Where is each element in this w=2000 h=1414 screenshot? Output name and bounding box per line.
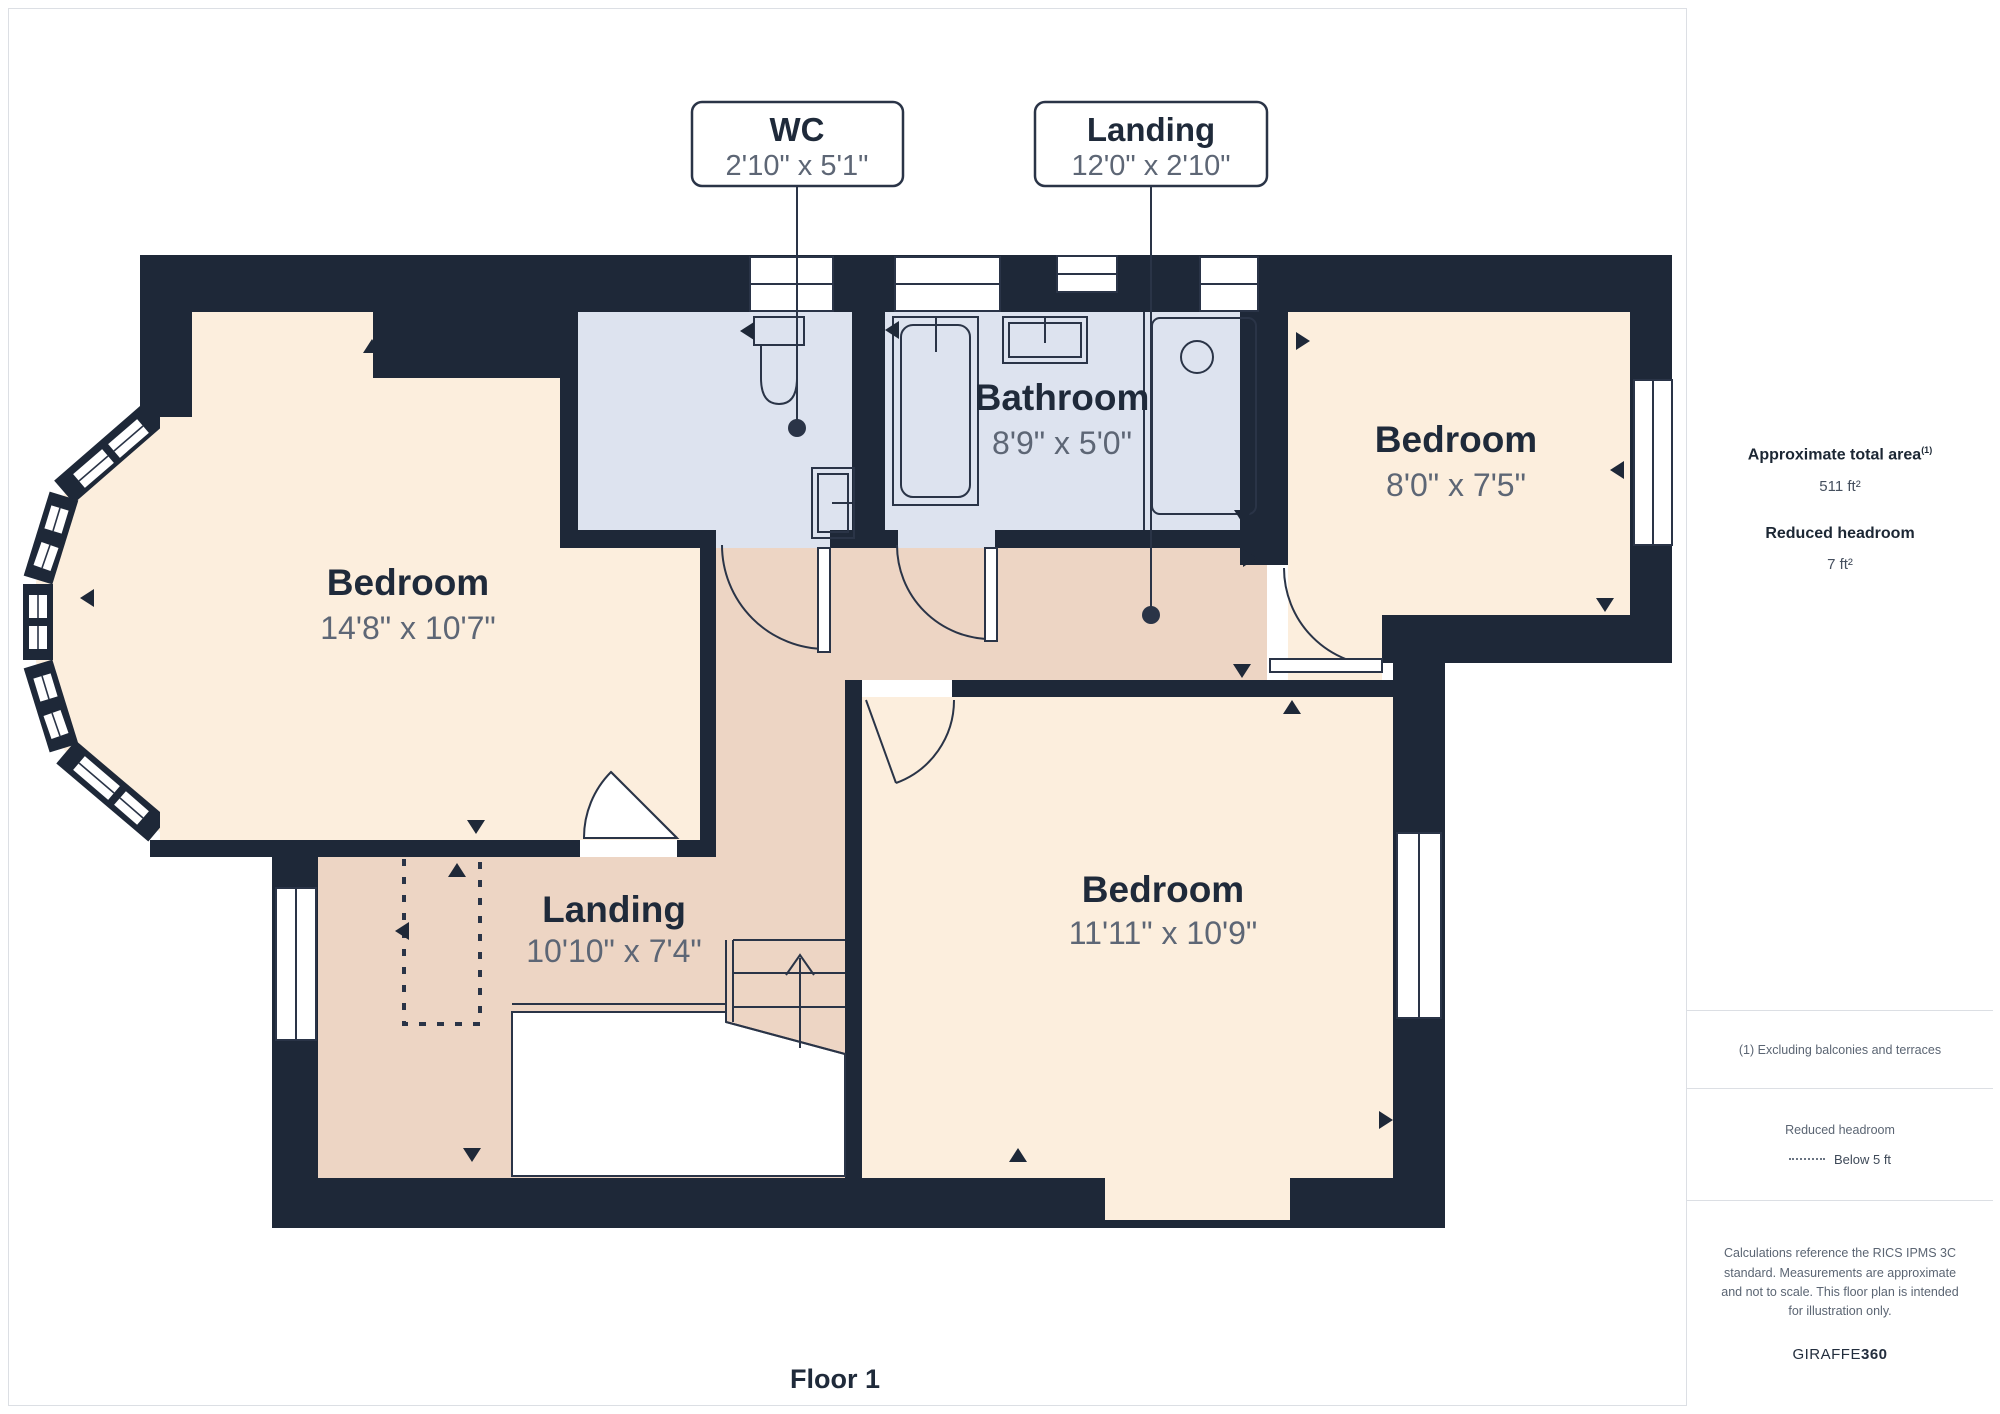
legend-row: Below 5 ft	[1789, 1152, 1891, 1167]
label-bedroom-topright-dims: 8'0" x 7'5"	[1386, 467, 1526, 503]
label-bedroom-bottomright-title: Bedroom	[1082, 869, 1244, 910]
wall-segment	[995, 530, 1240, 548]
callout-landing-title: Landing	[1087, 111, 1215, 148]
bedroom-bottom-notch	[1105, 1178, 1290, 1220]
window	[750, 257, 833, 311]
sidebar-disclaimer-section: Calculations reference the RICS IPMS 3C …	[1687, 1200, 1993, 1406]
window	[276, 888, 316, 1040]
label-bathroom-title: Bathroom	[975, 377, 1150, 418]
legend-title: Reduced headroom	[1785, 1123, 1895, 1137]
window	[1057, 256, 1117, 292]
floorplan-page: WC 2'10" x 5'1" Landing 12'0" x 2'10" Be…	[0, 0, 2000, 1414]
wall-segment	[1382, 615, 1672, 663]
footnote-text: (1) Excluding balconies and terraces	[1739, 1043, 1941, 1057]
window	[1200, 257, 1258, 311]
label-landing-title: Landing	[542, 889, 686, 930]
total-area-label: Approximate total area(1)	[1748, 445, 1932, 464]
callout-landing-dot	[1142, 606, 1160, 624]
window	[1634, 380, 1672, 545]
callout-wc-dot	[788, 419, 806, 437]
dashed-line-icon	[1789, 1158, 1825, 1160]
wall-segment	[845, 697, 862, 1178]
wall-segment	[373, 312, 578, 378]
label-bedroom-bottomright-dims: 11'11" x 10'9"	[1069, 915, 1258, 951]
label-bathroom-dims: 8'9" x 5'0"	[992, 425, 1132, 461]
legend-item-label: Below 5 ft	[1834, 1152, 1891, 1167]
floor-label: Floor 1	[790, 1364, 880, 1394]
wall-segment	[700, 530, 716, 840]
wall-segment	[677, 840, 716, 857]
bay-window	[36, 410, 162, 834]
total-area-footnote-marker: (1)	[1921, 445, 1932, 455]
reduced-headroom-value: 7 ft²	[1827, 556, 1853, 573]
reduced-headroom-label: Reduced headroom	[1765, 525, 1914, 543]
wall-segment	[560, 312, 578, 548]
info-sidebar: Approximate total area(1) 511 ft² Reduce…	[1686, 8, 1993, 1406]
room-wc	[560, 312, 852, 548]
sidebar-footnote-section: (1) Excluding balconies and terraces	[1687, 1010, 1993, 1088]
wall-segment	[150, 840, 580, 857]
callout-wc-dims: 2'10" x 5'1"	[726, 150, 869, 182]
wall-segment	[560, 530, 700, 548]
bedroom-bottom-notch-wall	[1105, 1220, 1290, 1228]
window	[895, 257, 1000, 311]
sidebar-area-section: Approximate total area(1) 511 ft² Reduce…	[1687, 8, 1993, 1010]
window	[1397, 833, 1441, 1018]
disclaimer-text: Calculations reference the RICS IPMS 3C …	[1721, 1244, 1959, 1322]
wall-segment	[952, 680, 1393, 697]
wall-segment	[140, 255, 192, 417]
giraffe360-logo: GIRAFFE360	[1792, 1346, 1887, 1363]
callout-wc-title: WC	[770, 111, 825, 148]
total-area-value: 511 ft²	[1819, 478, 1860, 495]
callout-landing-dims: 12'0" x 2'10"	[1071, 150, 1230, 182]
label-landing-dims: 10'10" x 7'4"	[526, 933, 702, 969]
label-bedroom-topright-title: Bedroom	[1375, 419, 1537, 460]
sidebar-legend-section: Reduced headroom Below 5 ft	[1687, 1088, 1993, 1200]
label-bedroom-left-dims: 14'8" x 10'7"	[320, 610, 496, 646]
label-bedroom-left-title: Bedroom	[327, 562, 489, 603]
wall-segment	[845, 680, 862, 697]
wall-segment	[852, 312, 885, 548]
